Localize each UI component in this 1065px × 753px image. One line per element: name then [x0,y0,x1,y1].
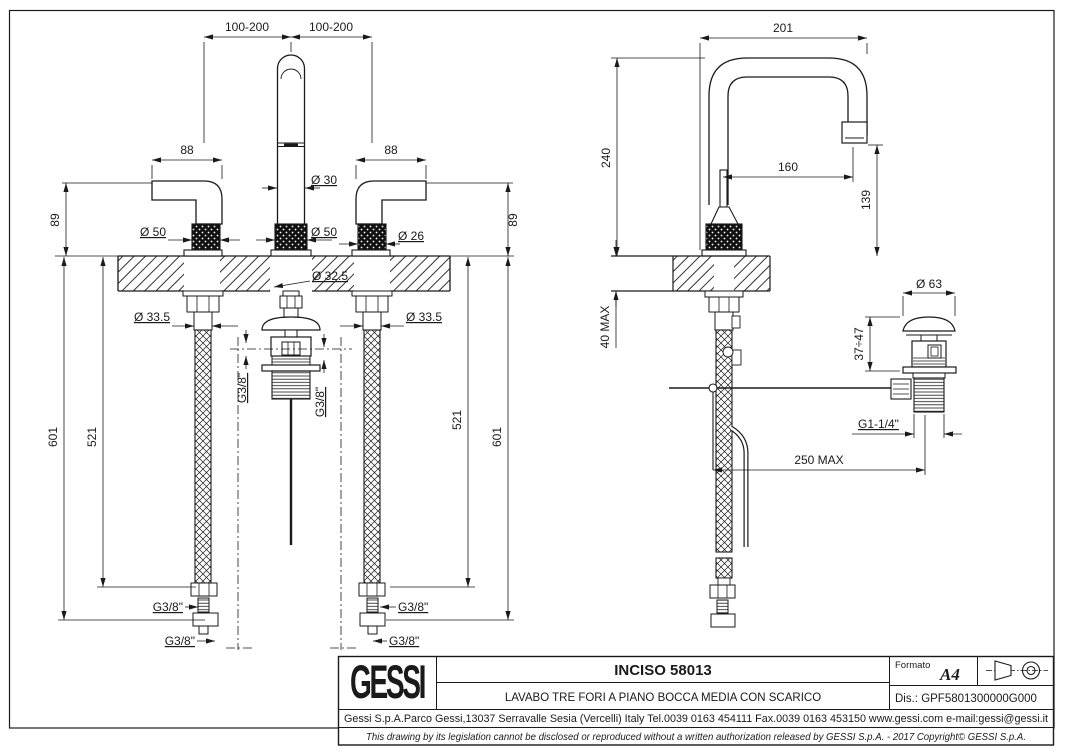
gessi-logo: GESSI [350,657,425,709]
dim-grip-diameter-center: Ø 50 [311,225,337,239]
dim-handle-width-right: 88 [384,143,398,157]
hose-side [716,330,732,552]
label-drain-thread-side: G1-1/4" [858,417,899,431]
spout-front [271,55,311,317]
dim-drain-cap-diameter: Ø 63 [916,277,942,291]
dim-height-139: 139 [859,190,873,210]
label-drain-thread-right: G3/8" [313,387,327,417]
dim-grip-diameter-right: Ø 26 [398,229,424,243]
product-description: LAVABO TRE FORI A PIANO BOCCA MEDIA CON … [505,692,821,704]
handle-left [152,181,223,634]
dim-height-240: 240 [599,148,613,168]
popup-waste-front [226,317,356,650]
product-code: INCISO 58013 [614,662,712,679]
format-value: A4 [939,665,960,684]
popup-waste-side [891,317,956,412]
dim-length-521-right: 521 [450,410,464,430]
handle-left-knurl [192,224,220,250]
dim-length-601-right: 601 [490,427,504,447]
lever-side [720,170,727,207]
dim-rod-reach: 250 MAX [794,453,843,467]
label-hose-thread-left-lower: G3/8" [165,634,195,648]
dim-counter-hole-diameter: Ø 32.5 [312,269,348,283]
drawing-number: Dis.: GPF5801300000G000 [895,693,1037,705]
drawing-sheet: 100-200 100-200 88 88 Ø 30 Ø 50 Ø 50 Ø 2… [0,0,1065,753]
dim-drain-adjust: 37÷47 [852,327,866,361]
dim-shank-diameter-left: Ø 33.5 [134,310,170,324]
spout-knurl-grip [275,224,307,250]
dim-length-601-left: 601 [46,427,60,447]
dim-spacing-right: 100-200 [309,20,353,34]
label-hose-thread-right-upper: G3/8" [398,600,428,614]
counter-section-front [118,256,450,291]
dim-shank-diameter-right: Ø 33.5 [406,310,442,324]
dim-handle-width-left: 88 [180,143,194,157]
copyright-notice: This drawing by its legislation cannot b… [366,731,1026,743]
label-hose-thread-right-lower: G3/8" [389,634,419,648]
counter-section-side [611,256,770,291]
svg-text:GESSI: GESSI [350,657,425,709]
hose-right [364,330,380,583]
label-hose-thread-left-upper: G3/8" [153,600,183,614]
spout-side [702,58,867,256]
dim-length-521-left: 521 [85,427,99,447]
front-view: 100-200 100-200 88 88 Ø 30 Ø 50 Ø 50 Ø 2… [46,20,520,650]
dim-height-left: 89 [48,213,62,227]
company-info: Gessi S.p.A.Parco Gessi,13037 Serravalle… [344,713,1048,725]
dim-height-right: 89 [506,213,520,227]
dim-spacing-left: 100-200 [225,20,269,34]
handle-right [352,181,426,634]
hose-left [195,330,211,583]
technical-drawing: 100-200 100-200 88 88 Ø 30 Ø 50 Ø 50 Ø 2… [0,0,1065,753]
side-view: 201 240 160 139 40 MAX Ø 63 37÷47 G1-1/4… [598,21,962,627]
label-drain-thread-left: G3/8" [235,373,249,403]
dim-spout-diameter: Ø 30 [311,173,337,187]
dim-counter-thickness: 40 MAX [598,306,612,349]
spout-nozzle [842,122,867,143]
dim-grip-diameter-left: Ø 50 [140,225,166,239]
format-label: Formato [895,660,930,671]
dim-reach-201: 201 [773,21,793,35]
body-knurl-side [706,224,742,250]
handle-right-knurl [358,224,386,250]
title-block: GESSI INCISO 58013 LAVABO TRE FORI A PIA… [339,657,1054,746]
dim-reach-160: 160 [778,160,798,174]
